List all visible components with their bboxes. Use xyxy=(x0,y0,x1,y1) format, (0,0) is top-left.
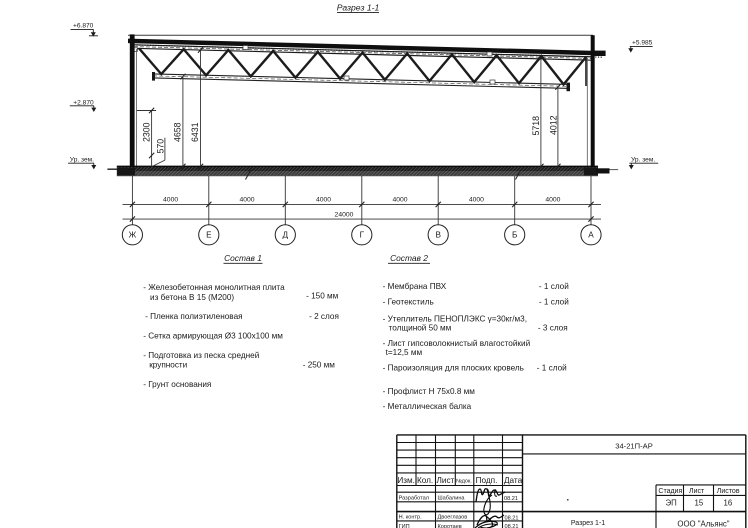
svg-text:- Металлическая балка: - Металлическая балка xyxy=(383,402,472,411)
svg-text:Ж: Ж xyxy=(129,231,137,240)
svg-text:Д: Д xyxy=(283,231,289,240)
svg-text:толщиной 50 мм: толщиной 50 мм xyxy=(389,324,452,333)
svg-text:+6.870: +6.870 xyxy=(73,22,94,29)
svg-text:08.21: 08.21 xyxy=(504,496,518,502)
svg-text:+5.985: +5.985 xyxy=(632,40,653,47)
svg-text:- Подготовка из песка средней: - Подготовка из песка средней xyxy=(143,351,259,360)
svg-text:- Профлист Н 75х0.8 мм: - Профлист Н 75х0.8 мм xyxy=(383,387,476,396)
svg-text:4000: 4000 xyxy=(469,197,484,204)
svg-text:Ур. зем.: Ур. зем. xyxy=(70,157,94,164)
svg-text:Н. контр.: Н. контр. xyxy=(399,515,423,521)
svg-text:А: А xyxy=(588,231,594,240)
svg-text:15: 15 xyxy=(695,499,704,508)
svg-text:№док.: №док. xyxy=(456,479,472,485)
svg-text:6431: 6431 xyxy=(190,122,200,142)
svg-text:Б: Б xyxy=(512,231,517,240)
svg-text:t=12,5 мм: t=12,5 мм xyxy=(386,348,423,357)
svg-text:ЭП: ЭП xyxy=(666,499,677,508)
svg-text:- 1 слой: - 1 слой xyxy=(539,297,569,306)
svg-text:Дата: Дата xyxy=(504,476,523,485)
svg-text:Коротаев: Коротаев xyxy=(438,524,462,528)
svg-text:Разработал: Разработал xyxy=(399,495,429,501)
svg-text:Шабалина: Шабалина xyxy=(438,495,466,501)
svg-text:из бетона В 15 (М200): из бетона В 15 (М200) xyxy=(150,293,234,302)
svg-text:Двоеглазов: Двоеглазов xyxy=(438,515,468,521)
svg-text:Кол.: Кол. xyxy=(417,476,433,485)
svg-text:Листов: Листов xyxy=(717,488,740,495)
svg-text:Стадия: Стадия xyxy=(658,488,682,495)
svg-text:- 250 мм: - 250 мм xyxy=(303,360,336,369)
svg-text:570: 570 xyxy=(156,139,166,154)
svg-text:В: В xyxy=(435,231,441,240)
svg-text:08.21: 08.21 xyxy=(505,524,519,528)
svg-text:- Грунт основания: - Грунт основания xyxy=(143,380,211,389)
svg-text:4000: 4000 xyxy=(163,197,178,204)
svg-text:2300: 2300 xyxy=(141,122,151,142)
svg-text:- Пленка полиэтиленовая: - Пленка полиэтиленовая xyxy=(145,312,242,321)
svg-text:Состав 2: Состав 2 xyxy=(390,253,428,263)
svg-text:- 2 слоя: - 2 слоя xyxy=(309,312,339,321)
svg-text:- Железобетонная монолитная п: - Железобетонная монолитная плита xyxy=(143,283,285,292)
svg-text:Г: Г xyxy=(360,231,365,240)
svg-text:Лист: Лист xyxy=(689,488,705,495)
svg-text:- Утеплитель ПЕНОПЛЭКС γ=30кг/: - Утеплитель ПЕНОПЛЭКС γ=30кг/м3, xyxy=(383,315,527,324)
svg-text:Изм.: Изм. xyxy=(397,476,415,485)
svg-text:4012: 4012 xyxy=(549,115,559,135)
svg-text:крупности: крупности xyxy=(149,360,187,369)
svg-text:4000: 4000 xyxy=(316,197,331,204)
svg-text:- Геотекстиль: - Геотекстиль xyxy=(383,297,434,306)
svg-text:ООО "Альянс": ООО "Альянс" xyxy=(677,520,729,528)
svg-text:- 1 слой: - 1 слой xyxy=(539,282,569,291)
svg-text:- Лист гипсоволокнистый влагос: - Лист гипсоволокнистый влагостойкий xyxy=(383,339,531,348)
svg-text:Ур. зем.: Ур. зем. xyxy=(631,157,655,164)
svg-text:4000: 4000 xyxy=(392,197,407,204)
svg-text:- 1 слой: - 1 слой xyxy=(537,364,567,373)
svg-text:16: 16 xyxy=(724,499,733,508)
svg-text:24000: 24000 xyxy=(335,211,354,218)
svg-text:4658: 4658 xyxy=(173,122,183,142)
svg-text:- Сетка армирующая Ø3 100х100: - Сетка армирующая Ø3 100х100 мм xyxy=(143,331,283,340)
svg-text:Е: Е xyxy=(206,231,212,240)
svg-text:5718: 5718 xyxy=(531,116,541,136)
svg-text:Разрез 1-1: Разрез 1-1 xyxy=(337,3,380,13)
svg-text:Состав 1: Состав 1 xyxy=(224,253,262,263)
svg-text:Разрез 1-1: Разрез 1-1 xyxy=(571,520,605,527)
svg-text:34-21П-АР: 34-21П-АР xyxy=(615,442,653,451)
svg-text:Подп.: Подп. xyxy=(476,476,498,485)
svg-text:- 150 мм: - 150 мм xyxy=(306,291,339,300)
svg-text:08.21: 08.21 xyxy=(505,515,519,521)
svg-text:4000: 4000 xyxy=(239,197,254,204)
svg-text:Лист: Лист xyxy=(437,476,455,485)
svg-text:- 3 слоя: - 3 слоя xyxy=(538,324,568,333)
svg-text:- Пароизоляция для плоских кро: - Пароизоляция для плоских кровель xyxy=(383,364,524,373)
svg-text:- Мембрана ПВХ: - Мембрана ПВХ xyxy=(383,282,447,291)
svg-text:4000: 4000 xyxy=(545,197,560,204)
svg-text:ГИП: ГИП xyxy=(399,524,410,528)
